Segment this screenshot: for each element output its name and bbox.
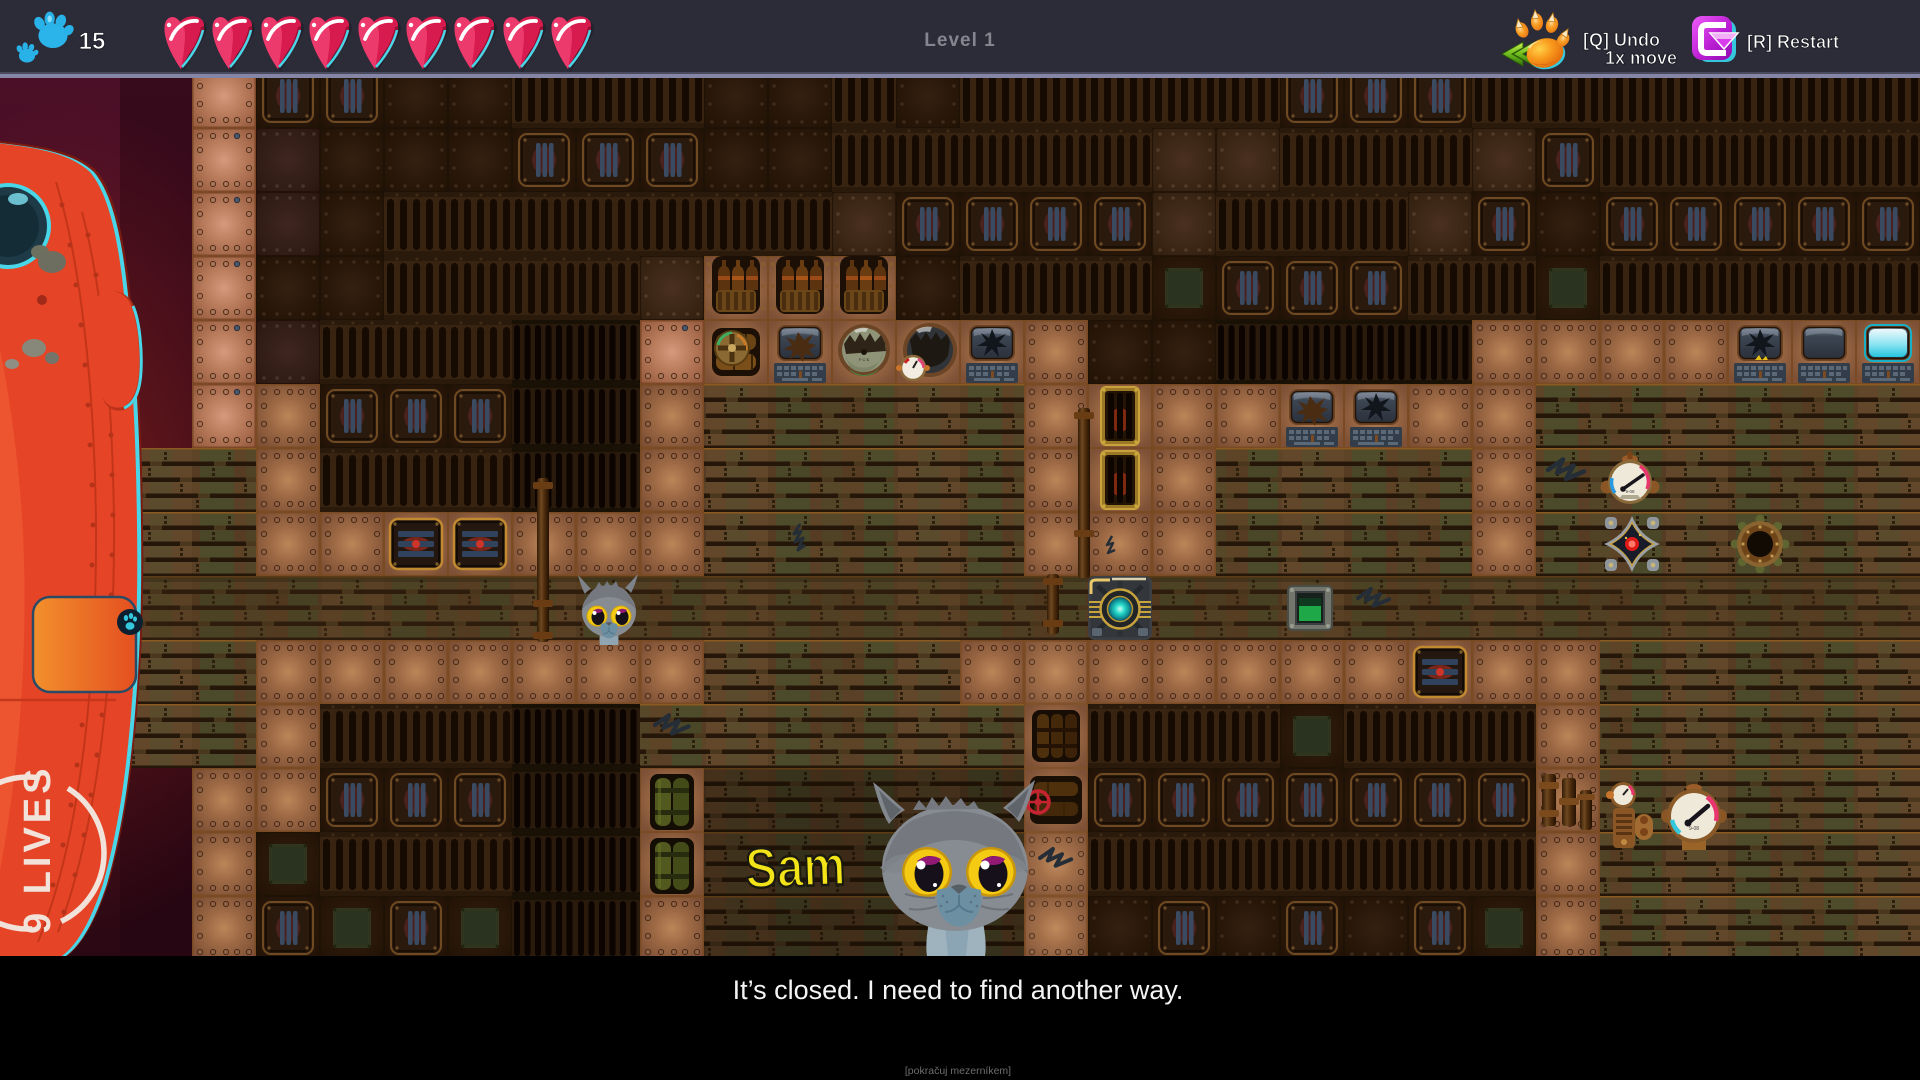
svg-text:[Q] Undo: [Q] Undo xyxy=(1583,30,1660,50)
svg-text:Level 1: Level 1 xyxy=(924,30,995,51)
svg-text:[R] Restart: [R] Restart xyxy=(1747,32,1839,52)
svg-text:Sam: Sam xyxy=(744,833,846,899)
svg-text:F·С·Б: F·С·Б xyxy=(859,357,870,362)
svg-text:[pokračuj mezerníkem]: [pokračuj mezerníkem] xyxy=(905,1065,1011,1077)
svg-text:9-08: 9-08 xyxy=(1689,826,1699,832)
svg-text:15: 15 xyxy=(79,28,106,55)
svg-text:1x move: 1x move xyxy=(1605,48,1677,68)
svg-text:9-08: 9-08 xyxy=(1625,489,1635,494)
svg-text:9 LIVES: 9 LIVES xyxy=(17,765,59,935)
svg-text:It’s closed. I need to find an: It’s closed. I need to find another way. xyxy=(733,975,1184,1005)
